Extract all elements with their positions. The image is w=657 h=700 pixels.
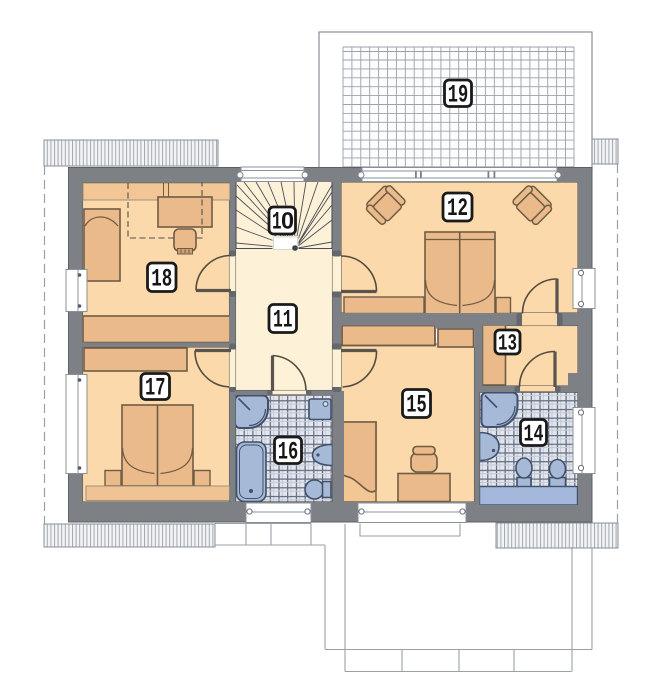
svg-text:11: 11 (273, 306, 293, 335)
svg-text:18: 18 (151, 265, 172, 294)
svg-text:13: 13 (498, 331, 517, 357)
svg-text:12: 12 (447, 194, 468, 223)
svg-text:16: 16 (278, 438, 299, 467)
svg-text:19: 19 (448, 81, 469, 110)
svg-text:0: 0 (281, 208, 294, 234)
svg-text:15: 15 (406, 391, 427, 420)
svg-text:17: 17 (145, 374, 166, 403)
svg-text:14: 14 (524, 422, 544, 449)
